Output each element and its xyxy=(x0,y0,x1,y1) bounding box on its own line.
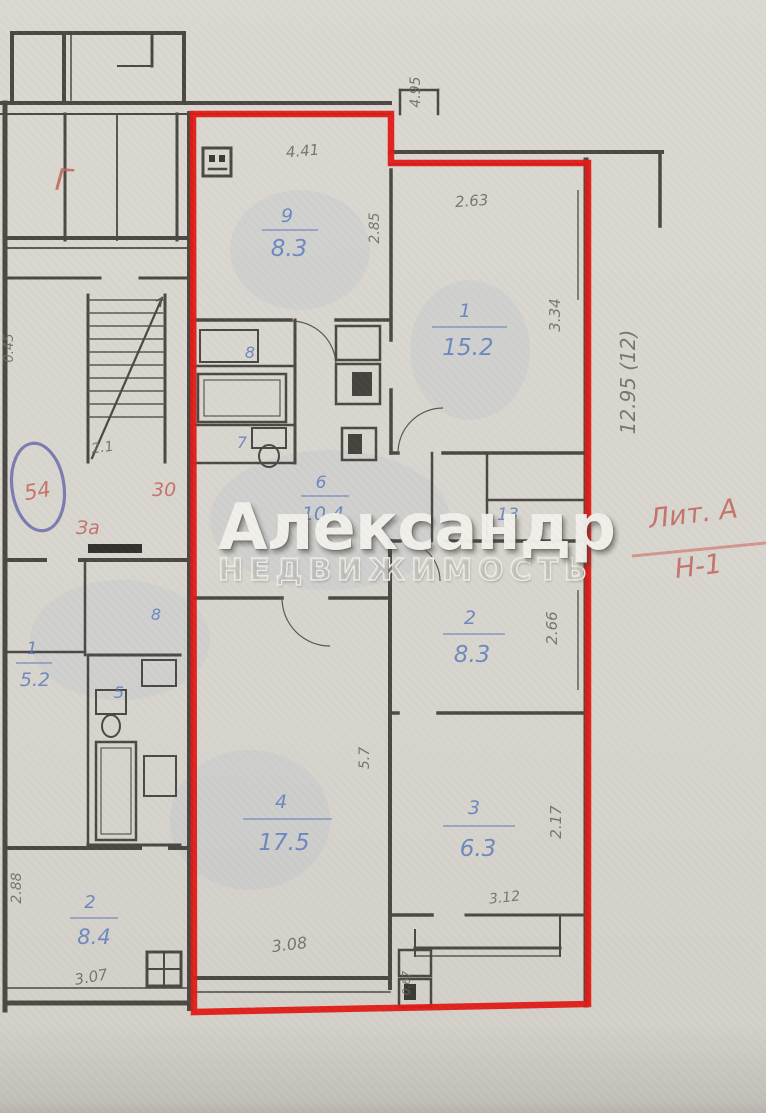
dim-room4-inner: 5.7 xyxy=(357,747,373,769)
mark-liter: Лит. А xyxy=(646,493,739,535)
toilet-bowl xyxy=(102,715,120,737)
nb-room1-num: 1 xyxy=(27,639,38,659)
nb-room1-area: 5.2 xyxy=(20,669,50,691)
washer xyxy=(144,756,176,796)
mark-za: За xyxy=(76,517,100,539)
building-top-block xyxy=(12,33,184,100)
room1-area: 15.2 xyxy=(442,335,493,361)
stamp-number: 54 xyxy=(22,477,52,505)
neighbor-upper-rooms xyxy=(5,114,190,278)
vent-icon xyxy=(203,148,231,176)
dim-balcony-width: 3.12 xyxy=(488,888,521,907)
room4-num: 4 xyxy=(275,791,287,813)
dim-kitchen-side: 2.85 xyxy=(367,212,383,243)
corridor-area: 10.4 xyxy=(302,503,344,525)
round-stamp: 54 xyxy=(6,440,70,534)
dim-room1-width: 2.63 xyxy=(454,191,489,211)
room1-num: 1 xyxy=(459,300,471,322)
dim-landing: 2.1 xyxy=(90,439,114,458)
threshold-bar xyxy=(88,544,142,553)
dim-kitchen-top: 4.41 xyxy=(285,141,320,162)
dim-room3-side: 2.17 xyxy=(547,805,565,839)
hatch-icon xyxy=(147,952,181,986)
dim-balcony-side: 0.67 xyxy=(400,971,413,996)
dim-room1-side: 3.34 xyxy=(546,298,564,331)
floorplan-drawing: 54 9 8.3 1 15.2 2 8.3 3 6.3 4 17.5 6 10.… xyxy=(0,0,766,1113)
dim-room2-side: 2.66 xyxy=(543,611,561,644)
door-arc-room4 xyxy=(282,598,330,646)
bathtub-inner xyxy=(101,748,131,834)
room3-num: 3 xyxy=(468,797,480,819)
dim-section-height: 12.95 (12) xyxy=(616,330,640,435)
room4-area: 17.5 xyxy=(258,830,309,856)
mark-30: 30 xyxy=(152,479,176,501)
dim-left-edge: 0.45 xyxy=(2,334,17,363)
nb-closet-num: 8 xyxy=(151,605,161,624)
room3-area: 6.3 xyxy=(460,836,497,862)
room2-area: 8.3 xyxy=(454,642,491,668)
dim-nb-room2-bottom: 3.07 xyxy=(73,965,109,989)
hall-num: 13 xyxy=(497,505,519,525)
dim-nb-room2-side: 2.88 xyxy=(9,872,25,903)
bathtub xyxy=(96,742,136,840)
dim-room4-bottom: 3.08 xyxy=(270,933,308,956)
closet-num: 8 xyxy=(245,343,255,362)
kitchen-area: 8.3 xyxy=(271,236,308,262)
nb-room2-num: 2 xyxy=(84,892,95,913)
room2-num: 2 xyxy=(464,607,476,629)
floorplan-scan: 54 9 8.3 1 15.2 2 8.3 3 6.3 4 17.5 6 10.… xyxy=(0,0,766,1113)
nb-room2-area: 8.4 xyxy=(77,925,110,949)
bathtub-2 xyxy=(198,374,286,422)
vent-shafts xyxy=(336,326,380,460)
nb-wc-num: 5 xyxy=(114,683,124,702)
wc-num: 7 xyxy=(237,433,248,452)
mark-building-line: Н-1 xyxy=(673,548,724,585)
mark-g: Г xyxy=(54,163,75,199)
kitchen-num: 9 xyxy=(281,205,293,227)
door-arc-room1 xyxy=(398,408,443,453)
dim-top-width: 4.95 xyxy=(408,76,424,107)
bathtub-2-inner xyxy=(204,380,280,416)
door-arc-kitchen xyxy=(291,321,336,366)
balcony xyxy=(415,915,560,956)
corridor-num: 6 xyxy=(316,473,327,493)
